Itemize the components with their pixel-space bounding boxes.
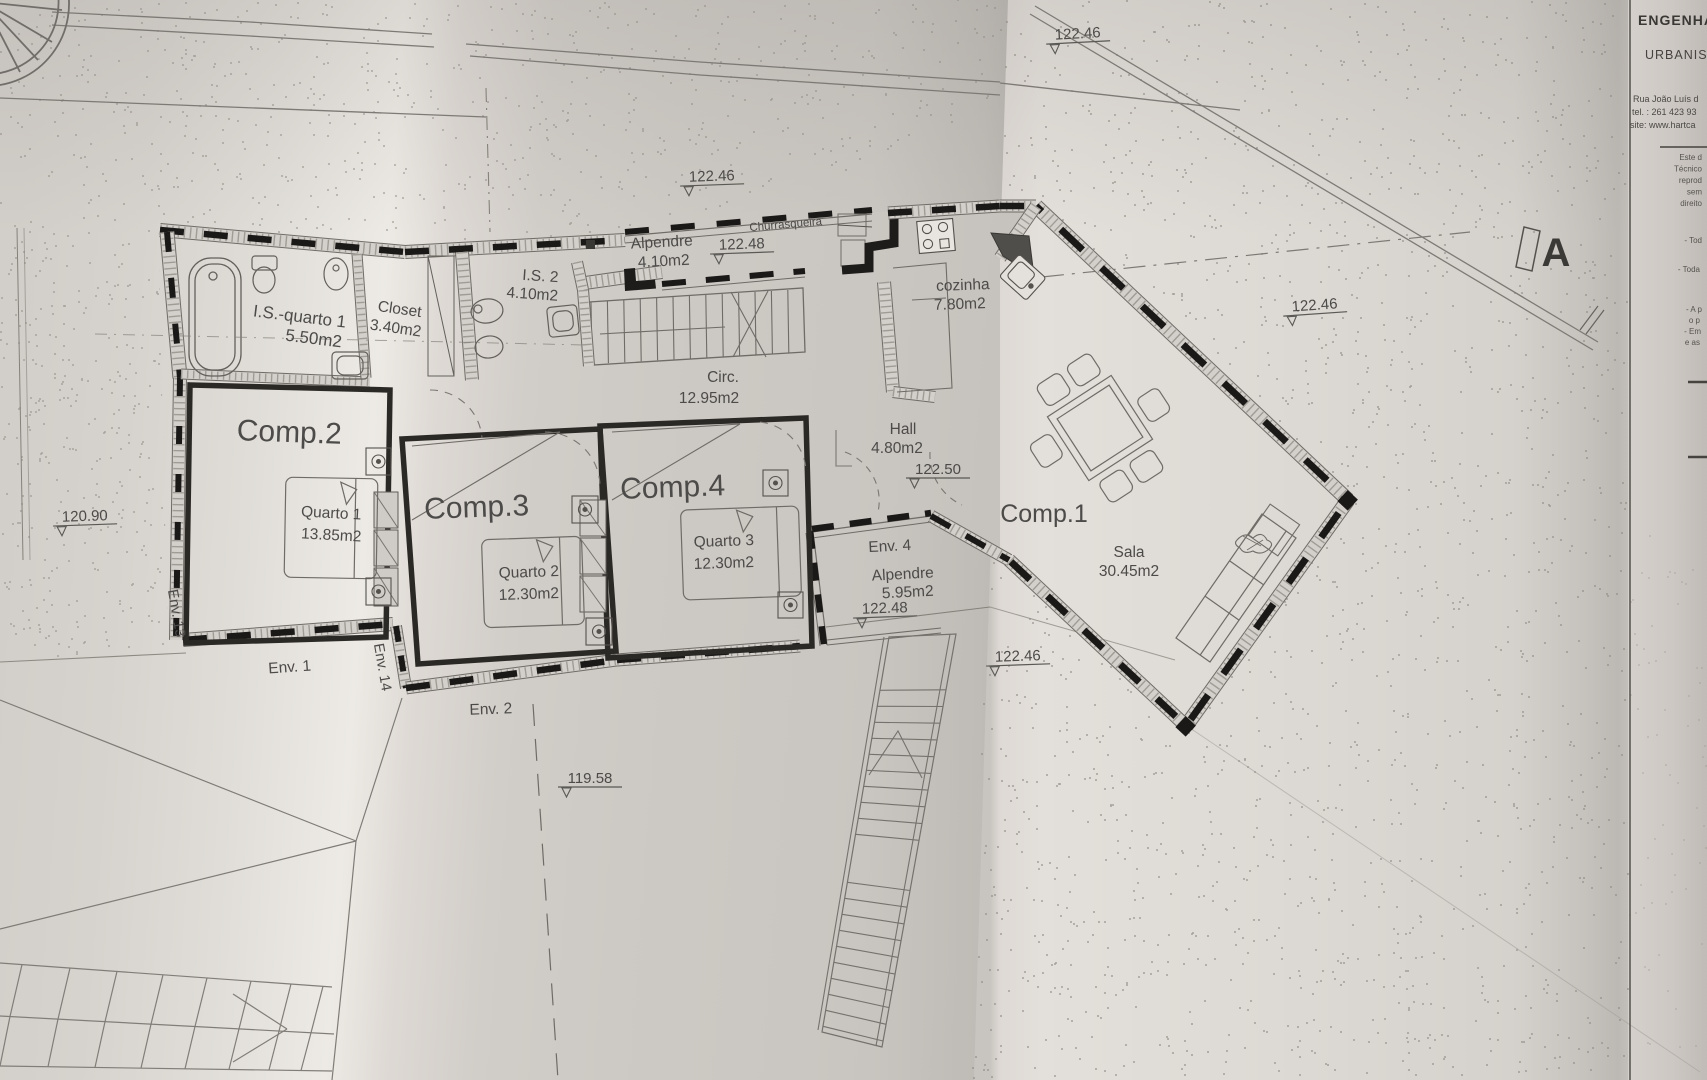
svg-text:30.45m2: 30.45m2 (1099, 563, 1159, 580)
svg-text:Env. 1: Env. 1 (268, 658, 312, 678)
svg-text:A: A (1542, 231, 1571, 275)
svg-text:Quarto 3: Quarto 3 (693, 532, 754, 551)
svg-text:122.50: 122.50 (915, 461, 961, 478)
svg-text:Técnico: Técnico (1674, 165, 1703, 174)
svg-text:122.46: 122.46 (689, 167, 735, 186)
svg-text:- A p: - A p (1686, 305, 1703, 314)
svg-text:7.80m2: 7.80m2 (934, 295, 986, 314)
svg-text:I.S. 2: I.S. 2 (522, 267, 559, 286)
svg-text:- Toda: - Toda (1678, 265, 1701, 274)
svg-text:cozinha: cozinha (936, 276, 990, 295)
svg-text:ENGENHA: ENGENHA (1638, 12, 1707, 28)
svg-text:Quarto 2: Quarto 2 (498, 563, 559, 582)
svg-text:Este d: Este d (1679, 153, 1702, 162)
svg-text:122.46: 122.46 (1054, 24, 1101, 43)
svg-text:Rua João Luís d: Rua João Luís d (1633, 94, 1699, 104)
svg-text:120.90: 120.90 (62, 507, 108, 526)
svg-text:- Tod: - Tod (1684, 236, 1702, 245)
svg-text:4.80m2: 4.80m2 (871, 440, 923, 457)
svg-text:direito: direito (1680, 199, 1702, 208)
svg-text:Circ.: Circ. (707, 369, 739, 386)
svg-text:e as: e as (1685, 338, 1700, 347)
svg-text:122.46: 122.46 (995, 647, 1041, 666)
svg-text:site: www.hartca: site: www.hartca (1630, 120, 1696, 130)
svg-text:4.10m2: 4.10m2 (506, 284, 559, 305)
svg-text:- Em: - Em (1684, 327, 1701, 336)
svg-text:Comp.1: Comp.1 (1000, 500, 1088, 528)
svg-text:Alpendre: Alpendre (630, 232, 693, 252)
svg-text:12.30m2: 12.30m2 (693, 554, 754, 573)
svg-text:13.85m2: 13.85m2 (301, 525, 362, 545)
svg-text:122.48: 122.48 (862, 599, 908, 618)
svg-text:12.95m2: 12.95m2 (679, 390, 739, 407)
svg-text:119.58: 119.58 (568, 770, 613, 787)
svg-text:12.30m2: 12.30m2 (498, 585, 559, 604)
svg-text:Comp.2: Comp.2 (236, 414, 342, 451)
svg-text:Quarto 1: Quarto 1 (301, 503, 362, 523)
svg-text:URBANIS: URBANIS (1645, 48, 1707, 62)
svg-text:Hall: Hall (890, 421, 917, 438)
svg-text:o p: o p (1689, 316, 1701, 325)
svg-text:122.48: 122.48 (719, 235, 765, 254)
svg-text:Comp.3: Comp.3 (424, 489, 530, 526)
svg-text:4.10m2: 4.10m2 (638, 252, 691, 272)
svg-text:Env. 2: Env. 2 (469, 700, 512, 718)
svg-text:Comp.4: Comp.4 (620, 469, 726, 506)
svg-text:reprod: reprod (1679, 176, 1702, 185)
svg-text:tel. : 261 423 93: tel. : 261 423 93 (1632, 107, 1697, 117)
svg-text:Sala: Sala (1113, 544, 1144, 561)
svg-text:Env. 4: Env. 4 (868, 537, 912, 556)
svg-text:sem: sem (1687, 188, 1702, 197)
svg-text:Alpendre: Alpendre (871, 564, 934, 584)
